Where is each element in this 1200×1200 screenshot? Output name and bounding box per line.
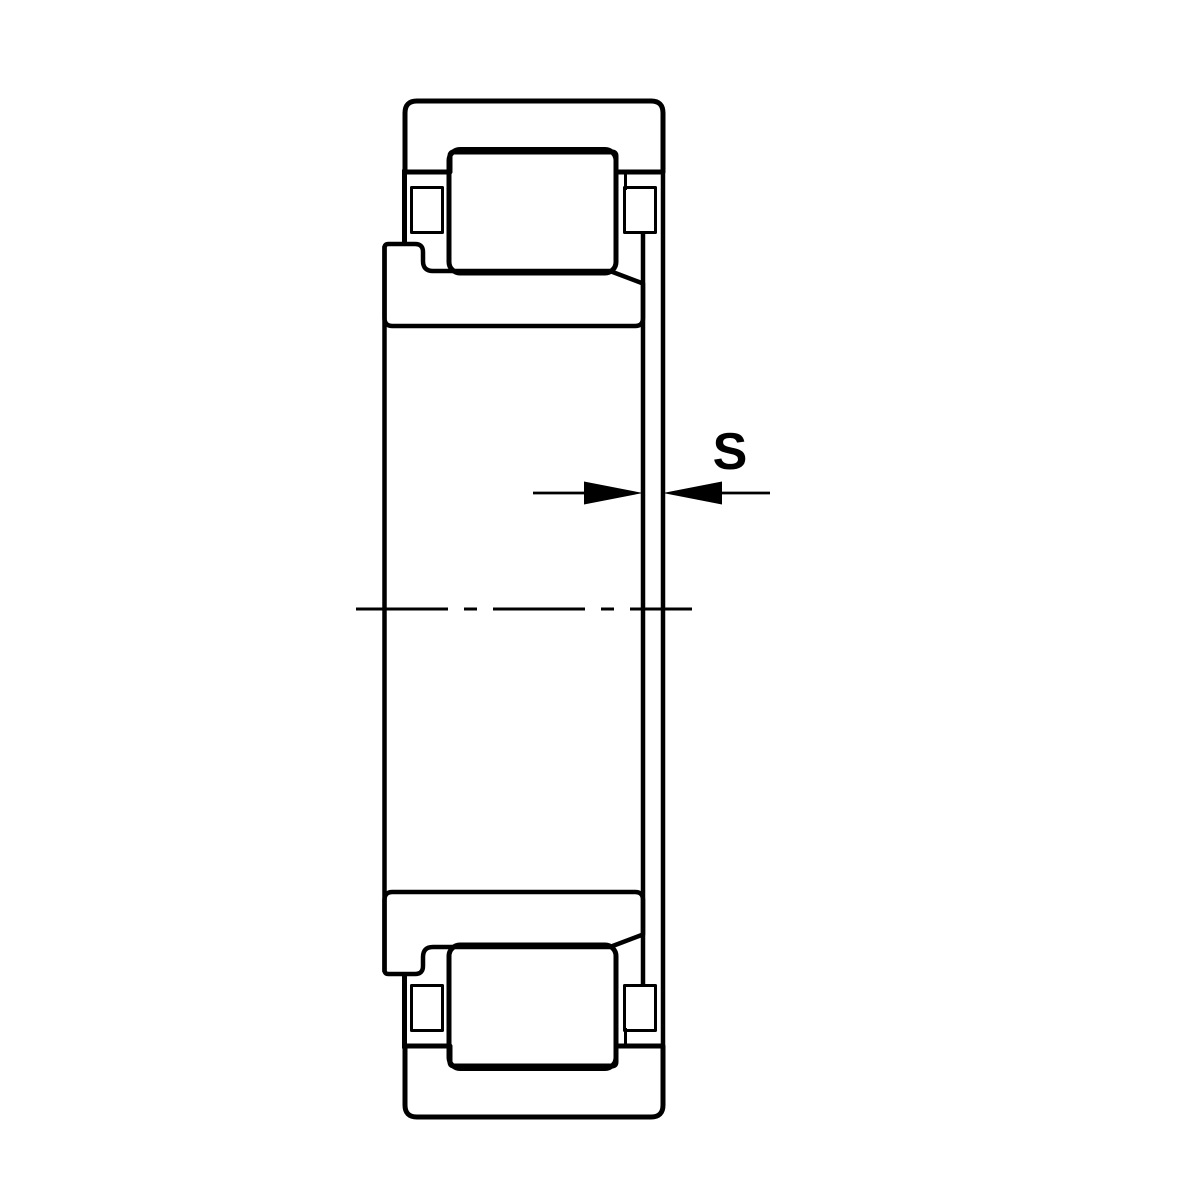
bearing-cross-section-svg: S — [0, 0, 1200, 1200]
dimension-arrow-left-icon — [584, 482, 643, 505]
outer-ring-bottom-section — [405, 1046, 663, 1117]
dimension-arrow-right-icon — [663, 482, 722, 505]
cage-section-top-right — [625, 188, 656, 233]
inner-ring-bottom-section — [385, 892, 644, 974]
roller-bottom — [449, 945, 616, 1069]
dimension-s: S — [533, 423, 770, 505]
roller-top — [449, 150, 616, 274]
bearing-cross-section-drawing: S — [0, 0, 1200, 1200]
cage-section-top-left — [412, 188, 443, 233]
cage-section-bottom-left — [412, 986, 443, 1031]
outer-ring-top-section — [405, 101, 663, 172]
dimension-s-label: S — [713, 423, 748, 481]
cage-section-bottom-right — [625, 986, 656, 1031]
inner-ring-top-section — [385, 244, 644, 326]
